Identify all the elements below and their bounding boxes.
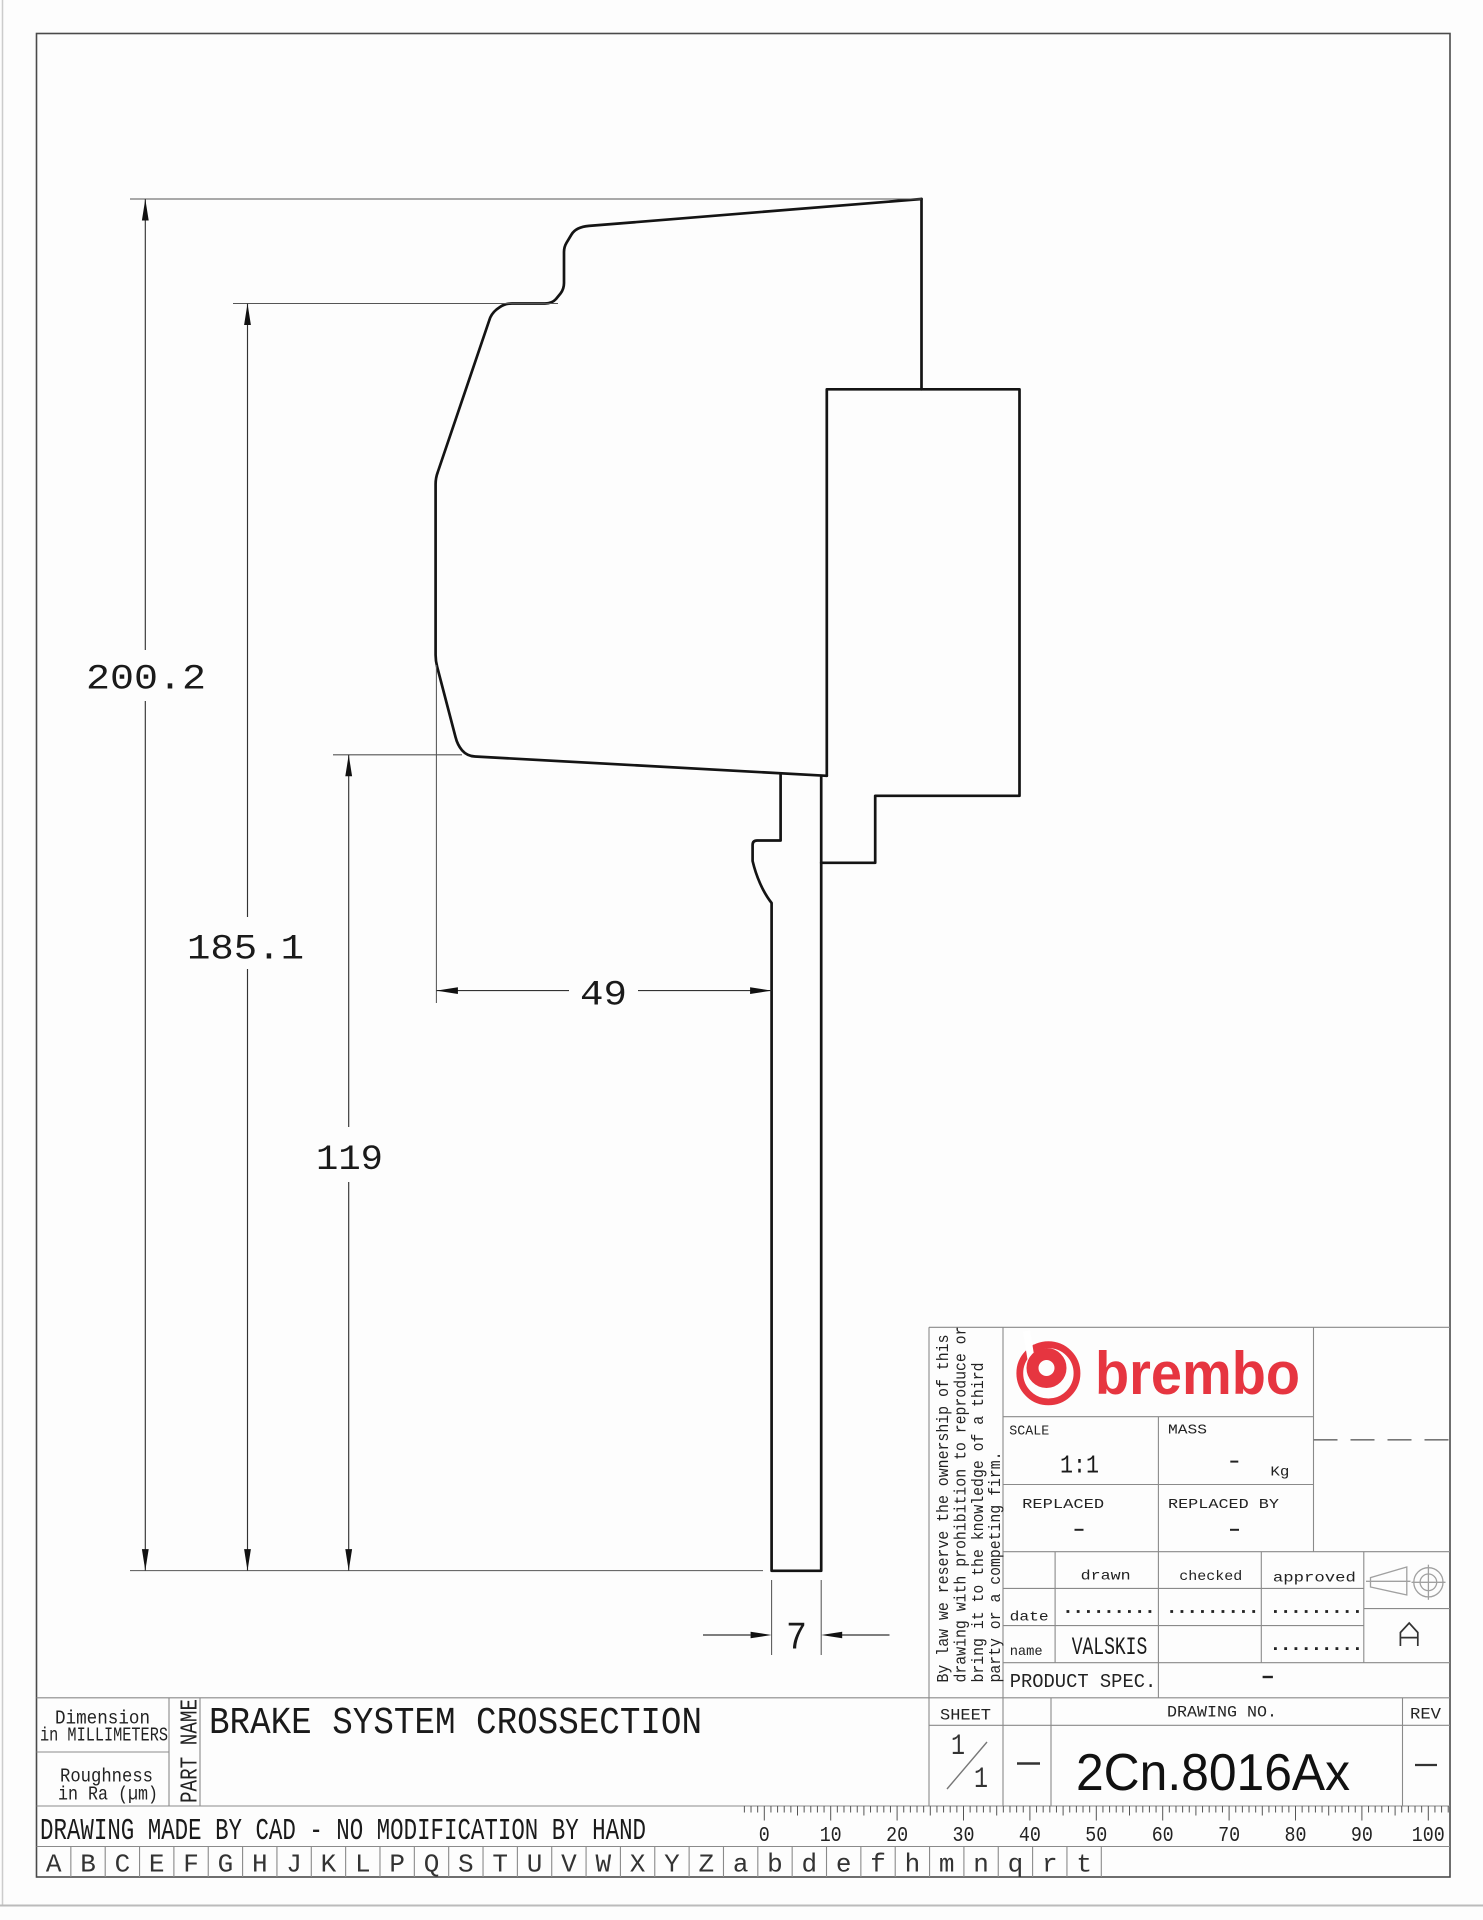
svg-text:approved: approved	[1273, 1570, 1356, 1586]
svg-text:m: m	[939, 1850, 955, 1880]
svg-text:W: W	[595, 1850, 611, 1880]
svg-text:A: A	[46, 1850, 62, 1880]
svg-text:Y: Y	[664, 1850, 680, 1880]
svg-text:200.2: 200.2	[86, 660, 206, 700]
svg-text:bring it to the knowledge of a: bring it to the knowledge of a third	[970, 1363, 988, 1683]
svg-text:drawn: drawn	[1081, 1569, 1131, 1585]
svg-text:K: K	[321, 1850, 337, 1880]
svg-text:date: date	[1010, 1609, 1049, 1625]
svg-text:a: a	[733, 1850, 749, 1880]
svg-text:C: C	[115, 1850, 131, 1880]
svg-text:e: e	[836, 1850, 852, 1880]
svg-text:1: 1	[974, 1763, 988, 1797]
svg-text:2Cn.8016Ax: 2Cn.8016Ax	[1076, 1744, 1350, 1802]
svg-text:T: T	[492, 1850, 508, 1880]
svg-text:DRAWING MADE BY CAD - NO MODIF: DRAWING MADE BY CAD - NO MODIFICATION BY…	[40, 1814, 646, 1849]
svg-text:name: name	[1010, 1644, 1043, 1660]
svg-text:185.1: 185.1	[187, 930, 304, 970]
svg-text:100: 100	[1412, 1825, 1445, 1848]
svg-text:party or a competing firm.: party or a competing firm.	[987, 1452, 1005, 1683]
svg-text:U: U	[527, 1850, 543, 1880]
svg-text:MASS: MASS	[1168, 1422, 1207, 1438]
svg-text:r: r	[1042, 1850, 1058, 1880]
svg-text:10: 10	[820, 1825, 842, 1848]
svg-text:G: G	[218, 1850, 234, 1880]
svg-text:80: 80	[1285, 1825, 1307, 1848]
svg-text:t: t	[1076, 1850, 1092, 1880]
svg-text:Kg: Kg	[1270, 1465, 1289, 1481]
svg-text:60: 60	[1152, 1825, 1174, 1848]
svg-text:REPLACED BY: REPLACED BY	[1168, 1497, 1280, 1513]
svg-text:q: q	[1008, 1850, 1024, 1880]
svg-text:S: S	[458, 1850, 474, 1880]
svg-text:50: 50	[1085, 1825, 1107, 1848]
svg-text:REPLACED: REPLACED	[1022, 1497, 1104, 1513]
svg-text:in MILLIMETERS: in MILLIMETERS	[40, 1725, 168, 1747]
svg-text:checked: checked	[1179, 1569, 1242, 1585]
svg-text:drawing with prohibition to re: drawing with prohibition to reproduce or	[953, 1327, 971, 1683]
svg-text:E: E	[149, 1850, 165, 1880]
svg-text:20: 20	[886, 1825, 908, 1848]
svg-text:Q: Q	[424, 1850, 440, 1880]
svg-text:h: h	[905, 1850, 921, 1880]
svg-text:REV: REV	[1410, 1706, 1441, 1724]
svg-text:H: H	[252, 1850, 268, 1880]
svg-text:L: L	[355, 1850, 371, 1880]
svg-text:DRAWING NO.: DRAWING NO.	[1167, 1704, 1277, 1722]
svg-text:P: P	[389, 1850, 405, 1880]
svg-text:d: d	[802, 1850, 818, 1880]
svg-text:in Ra (µm): in Ra (µm)	[58, 1784, 158, 1806]
svg-text:VALSKIS: VALSKIS	[1072, 1633, 1148, 1662]
svg-text:PRODUCT SPEC.: PRODUCT SPEC.	[1010, 1671, 1157, 1693]
svg-text:V: V	[561, 1850, 577, 1880]
svg-text:n: n	[973, 1850, 989, 1880]
svg-text:0: 0	[759, 1825, 770, 1848]
svg-text:49: 49	[580, 976, 627, 1016]
svg-text:B: B	[80, 1850, 96, 1880]
svg-text:brembo: brembo	[1095, 1340, 1300, 1407]
svg-text:By law we reserve the ownershi: By law we reserve the ownership of this	[935, 1335, 953, 1683]
svg-text:Z: Z	[698, 1850, 714, 1880]
svg-text:BRAKE SYSTEM CROSSECTION: BRAKE SYSTEM CROSSECTION	[209, 1702, 702, 1745]
svg-text:1:1: 1:1	[1060, 1450, 1099, 1480]
svg-text:f: f	[870, 1850, 886, 1880]
svg-text:70: 70	[1218, 1825, 1240, 1848]
svg-text:X: X	[630, 1850, 646, 1880]
svg-text:90: 90	[1351, 1825, 1373, 1848]
svg-text:b: b	[767, 1850, 783, 1880]
svg-text:J: J	[286, 1850, 302, 1880]
svg-text:SCALE: SCALE	[1009, 1424, 1049, 1440]
svg-text:30: 30	[953, 1825, 975, 1848]
svg-text:SHEET: SHEET	[940, 1707, 991, 1725]
svg-text:1: 1	[951, 1730, 965, 1764]
svg-text:PART NAME: PART NAME	[178, 1699, 205, 1803]
svg-text:119: 119	[316, 1140, 383, 1180]
svg-text:7: 7	[786, 1617, 807, 1661]
svg-text:F: F	[183, 1850, 199, 1880]
svg-text:40: 40	[1019, 1825, 1041, 1848]
